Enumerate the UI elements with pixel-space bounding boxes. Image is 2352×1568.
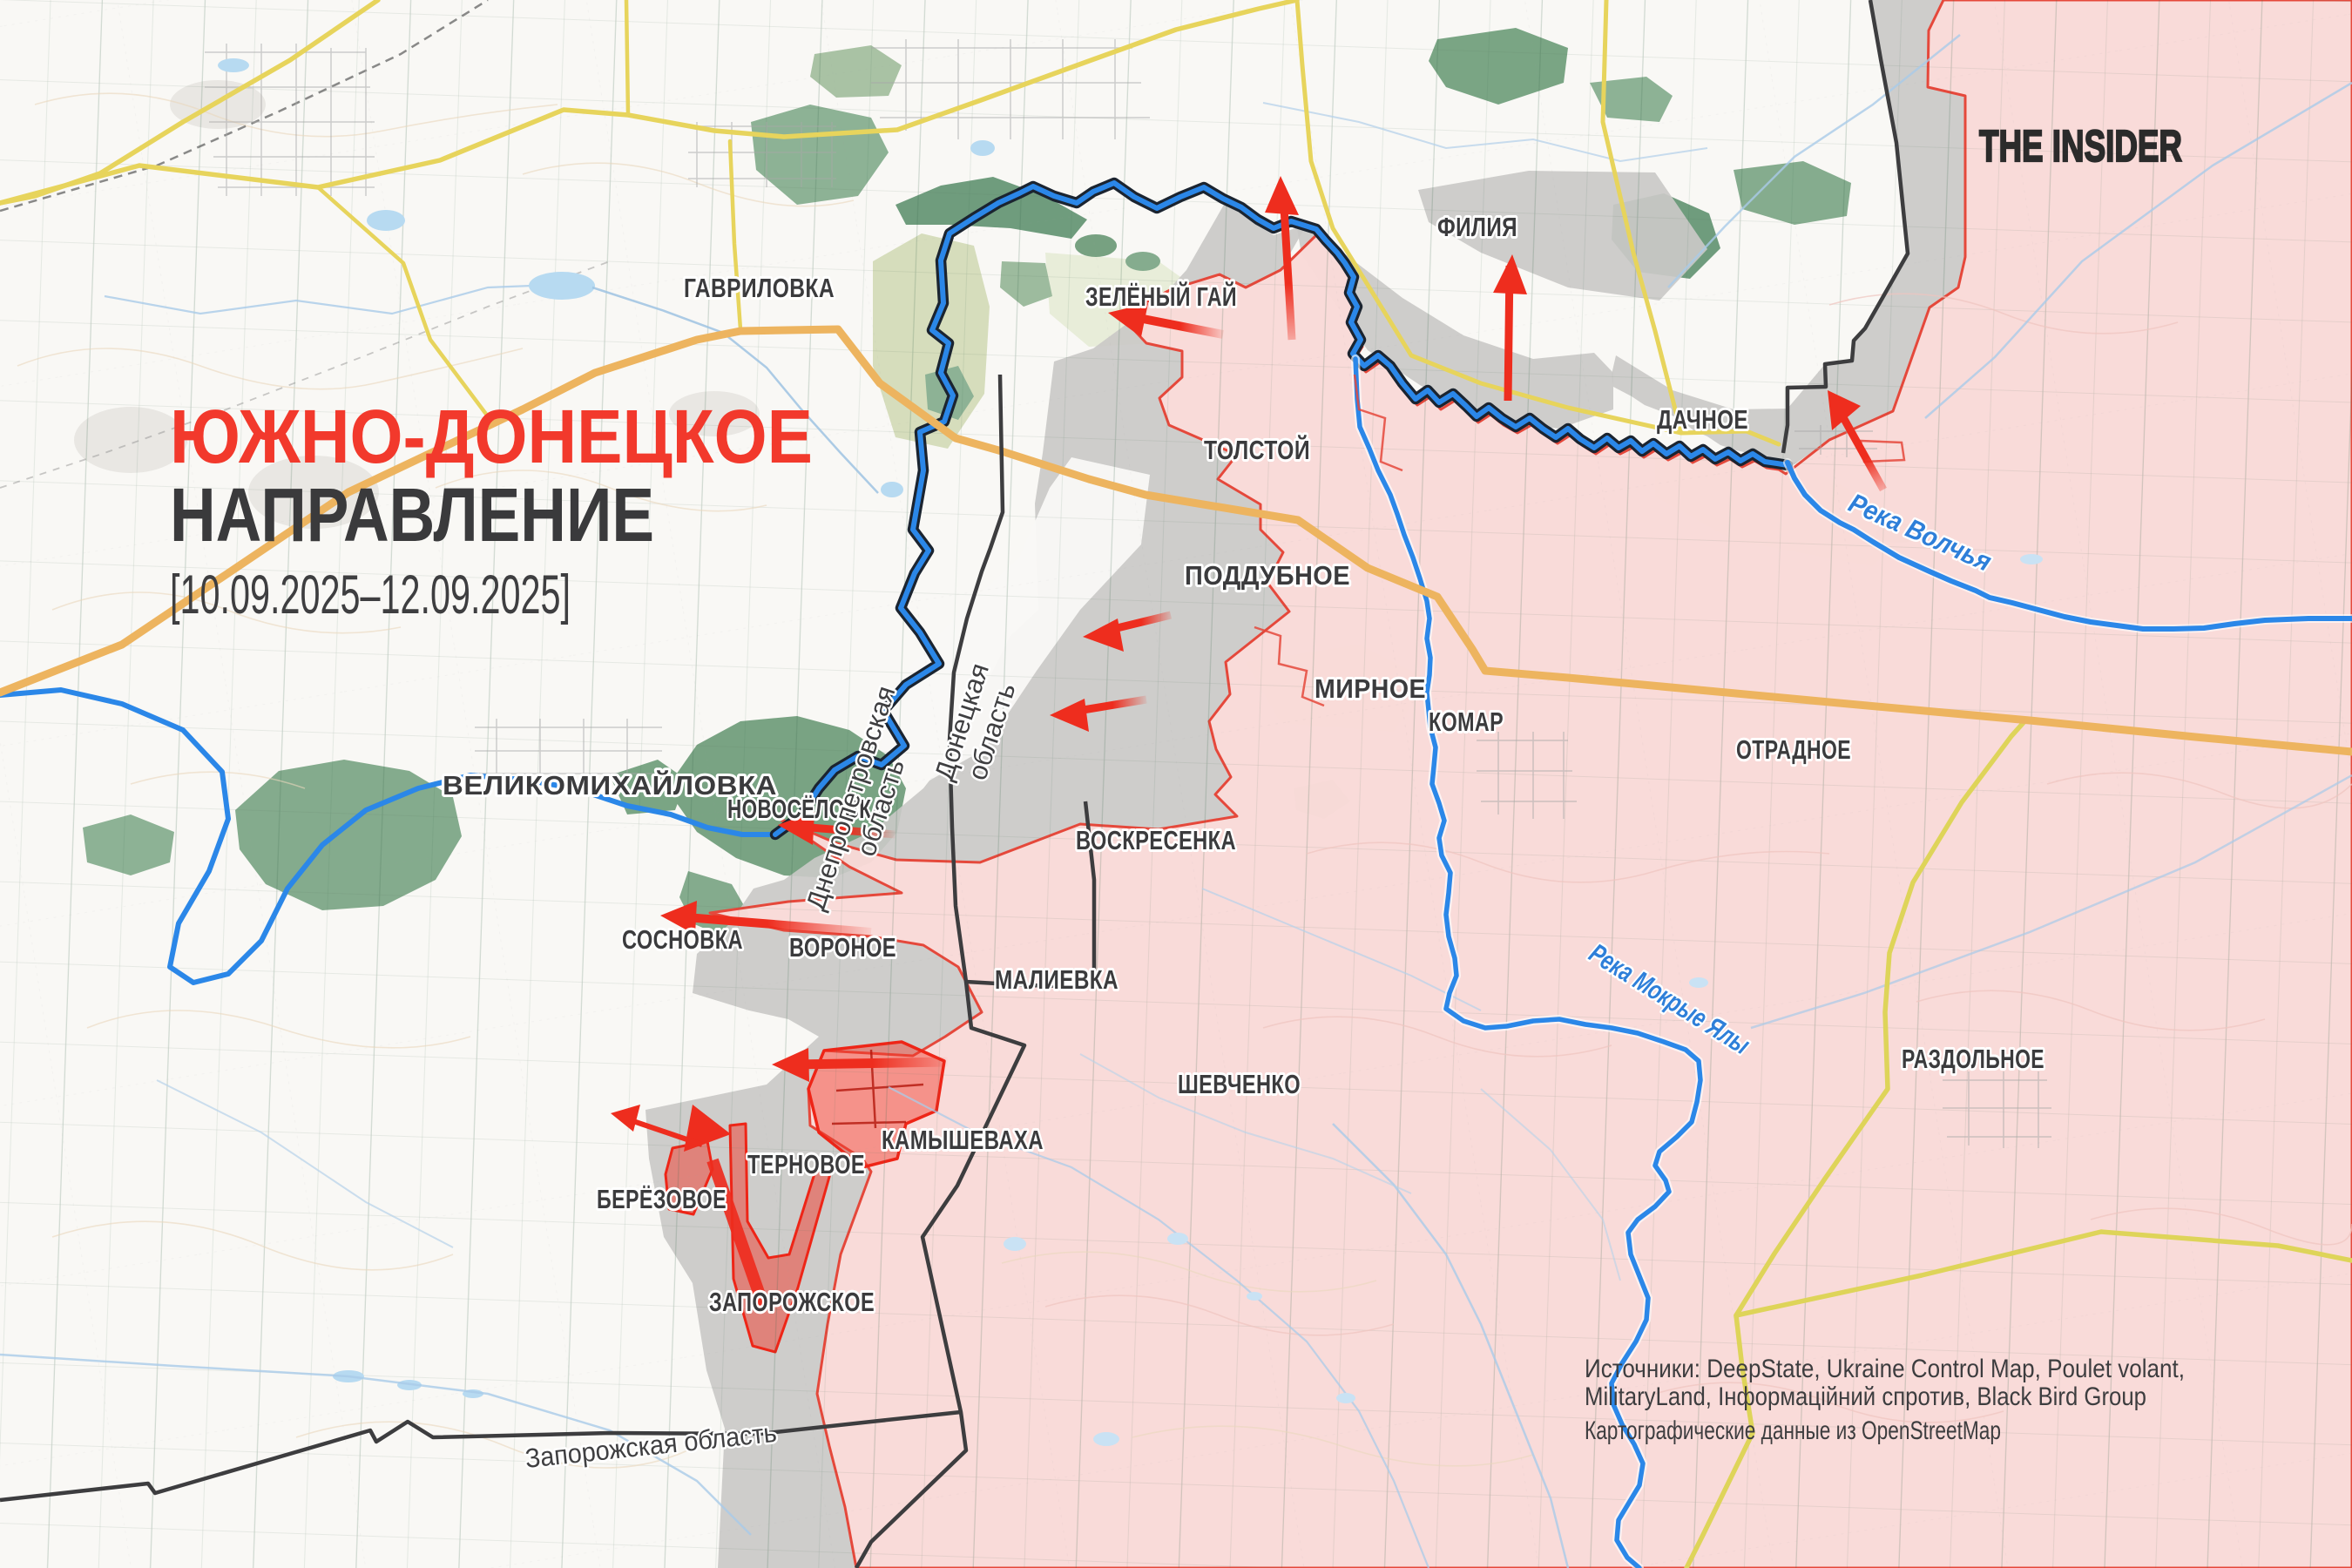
- svg-text:ФИЛИЯ: ФИЛИЯ: [1437, 212, 1517, 242]
- svg-text:ВОСКРЕСЕНКА: ВОСКРЕСЕНКА: [1076, 825, 1236, 855]
- svg-text:СОСНОВКА: СОСНОВКА: [622, 924, 743, 955]
- svg-text:MilitaryLand, Інформаційний сп: MilitaryLand, Інформаційний спротив, Bla…: [1585, 1382, 2146, 1411]
- svg-text:Источники: DeepState, Ukraine: Источники: DeepState, Ukraine Control Ma…: [1585, 1355, 2185, 1383]
- svg-text:ТЕРНОВОЕ: ТЕРНОВОЕ: [747, 1149, 865, 1179]
- svg-text:ВОРОНОЕ: ВОРОНОЕ: [789, 932, 896, 963]
- svg-text:ТОЛСТОЙ: ТОЛСТОЙ: [1204, 434, 1310, 465]
- svg-text:ШЕВЧЕНКО: ШЕВЧЕНКО: [1178, 1069, 1301, 1099]
- svg-text:ДАЧНОЕ: ДАЧНОЕ: [1657, 404, 1748, 435]
- svg-text:ОТРАДНОЕ: ОТРАДНОЕ: [1736, 734, 1851, 765]
- svg-text:Картографические данные из Ope: Картографические данные из OpenStreetMap: [1585, 1416, 2001, 1445]
- svg-text:[10.09.2025–12.09.2025]: [10.09.2025–12.09.2025]: [170, 564, 571, 625]
- svg-text:НАПРАВЛЕНИЕ: НАПРАВЛЕНИЕ: [170, 473, 654, 558]
- svg-text:КОМАР: КОМАР: [1429, 706, 1504, 737]
- svg-text:ГАВРИЛОВКА: ГАВРИЛОВКА: [684, 273, 835, 303]
- svg-text:РАЗДОЛЬНОЕ: РАЗДОЛЬНОЕ: [1902, 1044, 2044, 1074]
- svg-text:ЮЖНО-ДОНЕЦКОЕ: ЮЖНО-ДОНЕЦКОЕ: [170, 395, 813, 479]
- svg-text:МАЛИЕВКА: МАЛИЕВКА: [995, 964, 1119, 995]
- svg-text:ПОДДУБНОЕ: ПОДДУБНОЕ: [1185, 560, 1350, 591]
- svg-text:ЗАПОРОЖСКОЕ: ЗАПОРОЖСКОЕ: [709, 1287, 875, 1317]
- svg-text:БЕРЁЗОВОЕ: БЕРЁЗОВОЕ: [597, 1184, 727, 1214]
- svg-text:THE INSIDER: THE INSIDER: [1979, 121, 2182, 171]
- svg-text:МИРНОЕ: МИРНОЕ: [1315, 673, 1426, 704]
- svg-text:ЗЕЛЁНЫЙ ГАЙ: ЗЕЛЁНЫЙ ГАЙ: [1085, 280, 1237, 312]
- svg-text:КАМЫШЕВАХА: КАМЫШЕВАХА: [882, 1125, 1044, 1155]
